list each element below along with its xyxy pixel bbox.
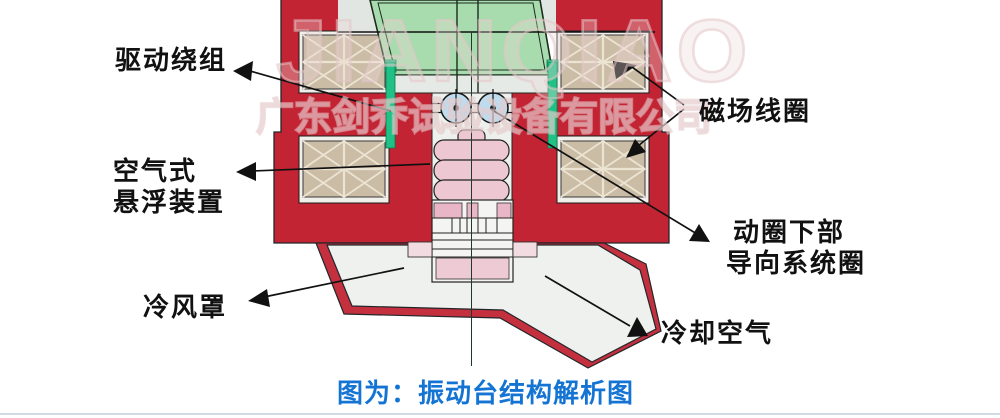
vibration-table-structure-figure: JIANQIAO 广东剑乔试验设备有限公司 驱动绕组 空气式 悬浮装置 冷风罩 … <box>0 0 1000 418</box>
field-coil-block-bottom-left <box>299 136 389 203</box>
label-lower-guide-line2: 导向系统圈 <box>726 248 866 279</box>
field-coil-block-top-right <box>557 31 649 93</box>
bottom-divider <box>0 413 1000 415</box>
label-cooling-air: 冷却空气 <box>661 318 773 349</box>
label-drive-winding: 驱动绕组 <box>115 45 227 76</box>
label-air-suspension-line1: 空气式 <box>113 156 197 187</box>
label-cooling-hood: 冷风罩 <box>143 292 227 323</box>
label-air-suspension-line2: 悬浮装置 <box>113 187 225 218</box>
figure-caption: 图为：振动台结构解析图 <box>337 373 634 410</box>
label-field-coil: 磁场线圈 <box>699 96 811 127</box>
label-lower-guide-line1: 动圈下部 <box>733 217 845 248</box>
field-coil-block-top-left <box>299 31 389 93</box>
